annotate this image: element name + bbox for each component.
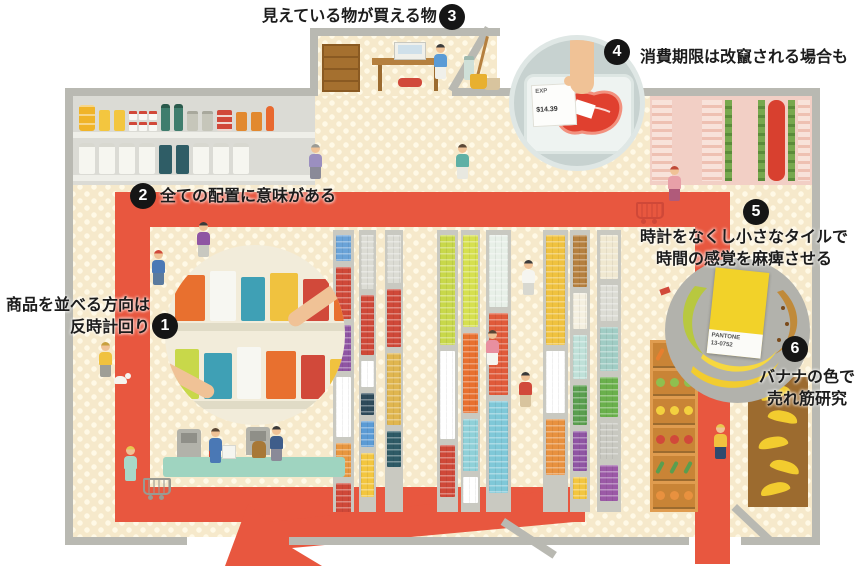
expiry-text: EXP bbox=[535, 87, 571, 95]
aisle-shelf-strip bbox=[437, 230, 458, 512]
callout-label-3: 見えている物が買える物 bbox=[262, 6, 437, 28]
shopper-figure bbox=[205, 428, 225, 463]
cereal-shelf-inset bbox=[165, 245, 345, 425]
produce-row bbox=[653, 399, 695, 424]
aisle-shelf-strip bbox=[570, 230, 590, 512]
milk-jug-icon bbox=[99, 143, 115, 174]
laptop-icon bbox=[394, 42, 426, 60]
sliced-meat-icon bbox=[798, 100, 810, 181]
checkout-counter bbox=[163, 457, 345, 477]
milk-jug-icon bbox=[193, 143, 209, 174]
milk-jug-icon bbox=[119, 143, 135, 174]
cereal-box-icon bbox=[301, 355, 325, 399]
shelf-board bbox=[165, 323, 345, 331]
callout-badge-2: 2 bbox=[130, 183, 156, 209]
aisle-shelf-strip bbox=[385, 230, 403, 512]
callout-label-2: 全ての配置に意味がある bbox=[160, 186, 336, 208]
callout-label-5: 時計をなくし小さなタイルで時間の感覚を麻痺させる bbox=[630, 227, 858, 271]
aisle-shelf-strip bbox=[461, 230, 480, 512]
store-wall bbox=[741, 537, 820, 545]
aisle-shelf-strip bbox=[543, 230, 568, 512]
cereal-box-icon bbox=[237, 347, 261, 399]
milk-jug-icon bbox=[213, 143, 229, 174]
storage-crates-icon bbox=[322, 44, 360, 92]
shopper-figure bbox=[518, 260, 538, 295]
shelf-board bbox=[73, 175, 315, 181]
shopper-figure bbox=[120, 446, 140, 481]
cereal-box-icon bbox=[210, 271, 236, 321]
grocery-wall-shelf bbox=[73, 96, 315, 185]
gray-jar-icon bbox=[202, 111, 213, 131]
yellow-can-icon bbox=[99, 110, 110, 131]
sausage-column bbox=[735, 100, 755, 181]
shopper-figure bbox=[710, 424, 730, 459]
shelf-board bbox=[73, 132, 315, 138]
cereal-box-icon bbox=[241, 277, 265, 321]
yellow-can-icon bbox=[114, 110, 125, 131]
cereal-box-icon bbox=[266, 351, 296, 399]
cereal-box-icon bbox=[175, 275, 205, 321]
red-can-stack-icon bbox=[217, 110, 232, 131]
shopper-figure bbox=[95, 342, 115, 377]
shopper-figure bbox=[482, 330, 502, 365]
milk-jug-icon bbox=[233, 143, 249, 174]
pantone-color-card: PANTONE 13-0752 bbox=[707, 267, 770, 358]
garnish-strip-icon bbox=[725, 100, 732, 181]
callout-label-1: 商品を並べる方向は反時計回り bbox=[4, 295, 150, 339]
aisle-shelf-strip bbox=[359, 230, 376, 512]
orange-bottle-icon bbox=[266, 106, 274, 131]
callout-badge-3: 3 bbox=[439, 4, 465, 30]
shopper-figure bbox=[305, 144, 325, 179]
callout-badge-5: 5 bbox=[743, 199, 769, 225]
shopper-figure bbox=[148, 250, 168, 285]
store-wall bbox=[65, 88, 318, 96]
red-meat-bar-icon bbox=[768, 100, 785, 181]
green-bottle-icon bbox=[161, 104, 170, 131]
produce-row bbox=[653, 456, 695, 481]
store-wall bbox=[289, 537, 689, 545]
produce-row bbox=[653, 484, 695, 509]
store-wall bbox=[812, 88, 820, 545]
dark-carton-icon bbox=[159, 145, 172, 174]
callout-badge-4: 4 bbox=[604, 39, 630, 65]
callout-badge-6: 6 bbox=[782, 336, 808, 362]
shopping-cart-icon bbox=[143, 478, 171, 495]
callout-label-6: バナナの色で売れ筋研究 bbox=[754, 367, 860, 411]
yellow-package-icon bbox=[79, 105, 95, 131]
bucket-icon bbox=[470, 74, 487, 89]
callout-badge-1: 1 bbox=[152, 313, 178, 339]
price-text: $14.39 bbox=[536, 105, 572, 114]
cash-register-icon bbox=[177, 429, 201, 457]
shopping-cart-icon bbox=[636, 202, 664, 219]
shopper-figure bbox=[664, 166, 684, 201]
backroom-wall bbox=[310, 28, 318, 96]
cup-pack-icon bbox=[129, 109, 157, 131]
orange-can-icon bbox=[236, 112, 247, 131]
peeling-hand-icon bbox=[570, 36, 594, 94]
dark-carton-icon bbox=[176, 145, 189, 174]
backroom-wall bbox=[310, 28, 500, 36]
shopping-bag-icon bbox=[252, 441, 266, 458]
dog-figure bbox=[114, 376, 127, 384]
cereal-box-icon bbox=[330, 359, 345, 399]
shopper-figure bbox=[193, 222, 213, 257]
banana-icon bbox=[769, 457, 801, 476]
shelf-row-bottom bbox=[79, 142, 309, 174]
chair-icon bbox=[398, 78, 422, 87]
shelf-row-top bbox=[79, 100, 309, 131]
aisle-shelf-strip bbox=[486, 230, 511, 512]
shopper-figure bbox=[266, 426, 286, 461]
banana-icon bbox=[757, 434, 788, 450]
garnish-strip-icon bbox=[788, 100, 795, 181]
banana-icon bbox=[759, 480, 791, 498]
garnish-strip-icon bbox=[758, 100, 765, 181]
supermarket-psychology-infographic: EXP $14.39 PANTONE 13-0752 1 2 3 4 5 6 商… bbox=[0, 0, 860, 578]
milk-jug-icon bbox=[139, 143, 155, 174]
green-bottle-icon bbox=[174, 104, 183, 131]
callout-label-4: 消費期限は改竄される場合も bbox=[640, 47, 848, 69]
sliced-meat-icon bbox=[702, 100, 722, 181]
shopper-figure bbox=[515, 372, 535, 407]
orange-can-icon bbox=[251, 112, 262, 131]
produce-row bbox=[653, 428, 695, 453]
shopper-figure bbox=[430, 44, 450, 79]
shopper-figure bbox=[452, 144, 472, 179]
aisle-shelf-strip bbox=[597, 230, 621, 512]
green-banana-icon bbox=[683, 286, 707, 354]
gray-jar-icon bbox=[187, 111, 198, 131]
store-wall bbox=[65, 537, 187, 545]
price-label: EXP $14.39 bbox=[531, 83, 577, 127]
shelf-board bbox=[165, 401, 345, 409]
milk-jug-icon bbox=[79, 143, 95, 174]
